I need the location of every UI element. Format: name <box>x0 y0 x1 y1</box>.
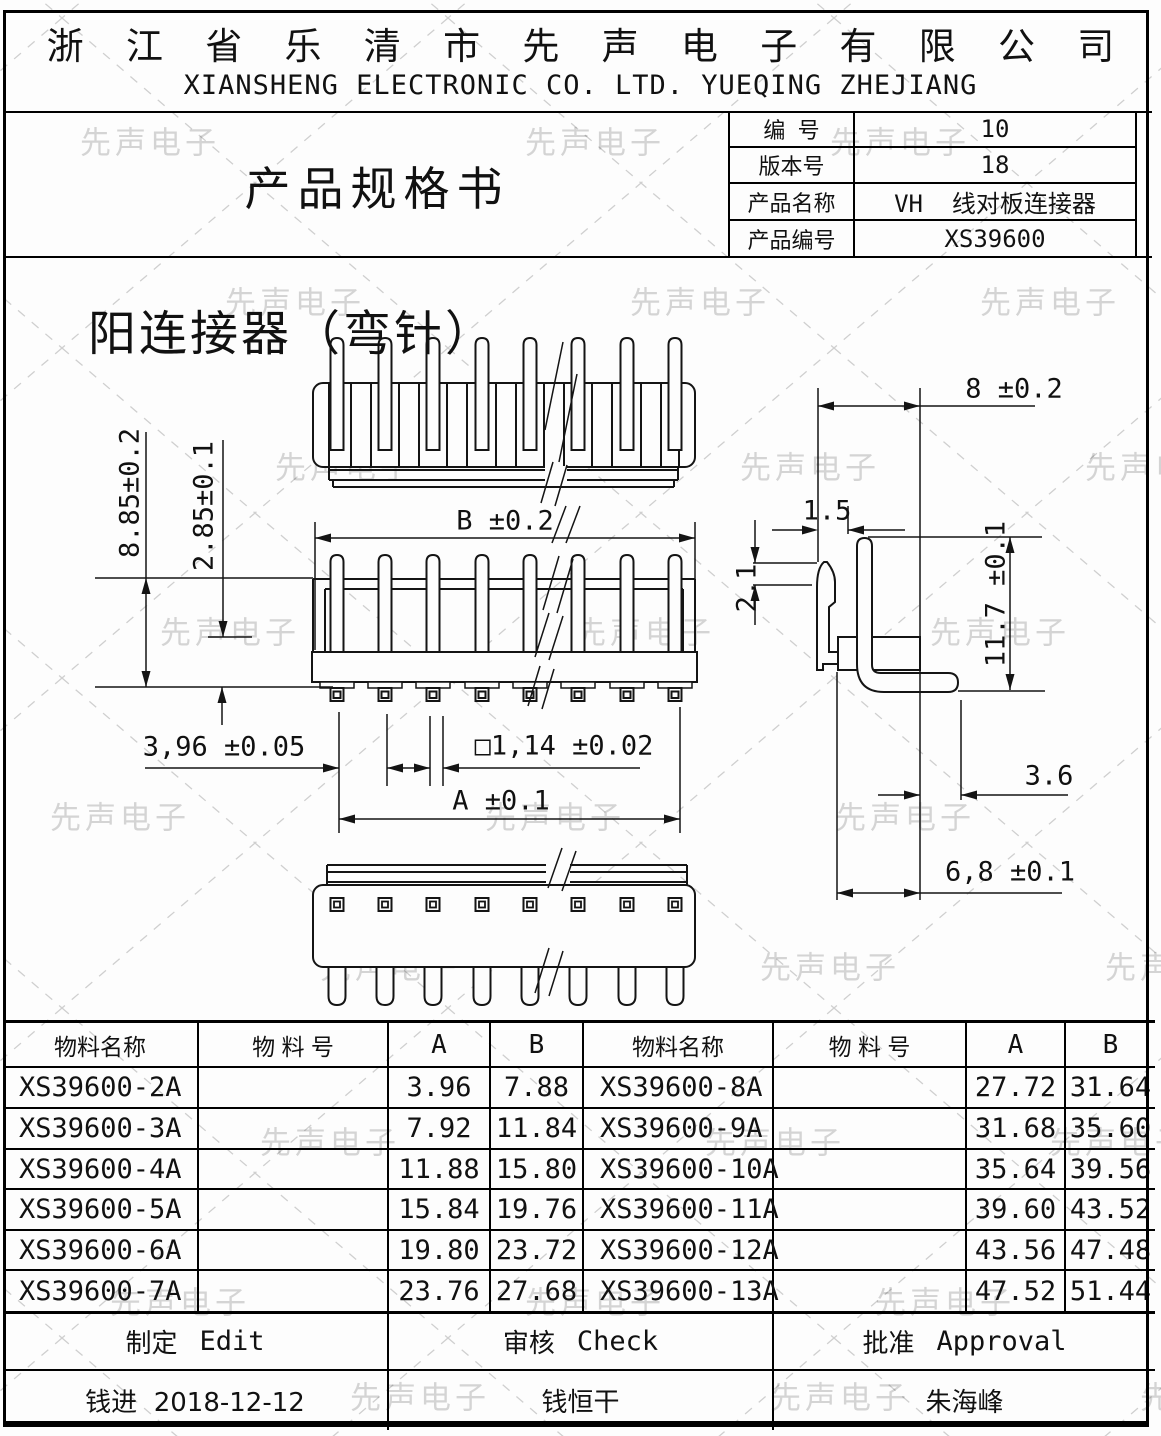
company-name-en: XIANSHENG ELECTRONIC CO. LTD. YUEQING ZH… <box>0 70 1161 101</box>
view-bottom <box>313 865 695 1005</box>
role-check: 审核 Check <box>389 1314 774 1371</box>
dim-tail-len: 3.6 <box>1025 761 1074 792</box>
dimension-cell: 27.68 <box>491 1271 584 1311</box>
dimension-cell: 39.56 <box>1066 1150 1155 1190</box>
part-number-cell: XS39600-12A <box>584 1231 774 1271</box>
dimension-cell: 51.44 <box>1066 1271 1155 1311</box>
dim-latch-width: 1.5 <box>803 496 852 527</box>
role-edit-cn: 制定 <box>125 1323 177 1360</box>
dimension-cell: 39.60 <box>967 1190 1066 1231</box>
part-number-cell: XS39600-10A <box>584 1150 774 1190</box>
part-number-cell: XS39600-6A <box>3 1231 199 1271</box>
dimension-cell <box>774 1150 967 1190</box>
parts-table-header: 物 料 号 <box>774 1023 967 1068</box>
dimension-cell <box>774 1109 967 1150</box>
field-label-product-code: 产品编号 <box>730 221 855 257</box>
field-value-product-name: VH 线对板连接器 <box>855 184 1135 221</box>
spec-sheet-page: 先声电子先声电子先声电子先声电子先声电子先声电子先声电子先声电子先声电子先声电子… <box>0 0 1161 1436</box>
dim-pin-square: □1,14 ±0.02 <box>475 731 654 762</box>
field-label-product-name: 产品名称 <box>730 184 855 221</box>
part-number-cell: XS39600-2A <box>3 1068 199 1109</box>
dim-latch-offset: 2.1 <box>732 564 763 613</box>
role-check-en: Check <box>577 1326 658 1357</box>
view-side <box>817 538 958 692</box>
dimension-cell <box>774 1271 967 1311</box>
dimension-cell: 31.68 <box>967 1109 1066 1150</box>
part-number-cell: XS39600-4A <box>3 1150 199 1190</box>
dim-height-side: 11.7 ±0.1 <box>981 521 1012 667</box>
watermark-text: 先声电子 <box>80 118 220 163</box>
dim-height-total: 8.85±0.2 <box>115 428 146 558</box>
watermark-text: 先声电子 <box>525 118 665 163</box>
doc-title: 产品规格书 <box>245 153 510 219</box>
role-approval-cn: 批准 <box>862 1323 914 1360</box>
part-number-cell: XS39600-3A <box>3 1109 199 1150</box>
dimension-cell <box>774 1068 967 1109</box>
dimension-cell <box>774 1190 967 1231</box>
dim-pitch: 3,96 ±0.05 <box>143 732 306 763</box>
dimension-cell <box>199 1190 389 1231</box>
signature-check: 钱恒干 <box>389 1371 774 1430</box>
role-check-cn: 审核 <box>503 1323 555 1360</box>
dimension-cell <box>774 1231 967 1271</box>
part-number-cell: XS39600-7A <box>3 1271 199 1311</box>
parts-table-header: A <box>389 1023 491 1068</box>
dimension-cell: 15.80 <box>491 1150 584 1190</box>
dim-span-a: A ±0.1 <box>452 786 550 817</box>
drawing-title: 阳连接器（弯针） <box>88 294 496 364</box>
signature-approval: 朱海峰 <box>774 1371 1155 1430</box>
dimension-cell <box>199 1150 389 1190</box>
dim-depth: 8 ±0.2 <box>965 374 1063 405</box>
dimension-cell: 27.72 <box>967 1068 1066 1109</box>
parts-table-header: B <box>1066 1023 1155 1068</box>
view-front <box>312 555 697 701</box>
dimension-cell <box>199 1231 389 1271</box>
company-name-cn: 浙 江 省 乐 清 市 先 声 电 子 有 限 公 司 <box>0 16 1161 70</box>
dimension-cell: 15.84 <box>389 1190 491 1231</box>
dimension-cell: 19.76 <box>491 1190 584 1231</box>
field-value-product-code: XS39600 <box>855 221 1135 257</box>
dimension-cell: 35.64 <box>967 1150 1066 1190</box>
field-value-version: 18 <box>855 148 1135 184</box>
parts-table: 物料名称物 料 号AB物料名称物 料 号ABXS39600-2A3.967.88… <box>3 1020 1155 1311</box>
dimension-cell: 47.48 <box>1066 1231 1155 1271</box>
dimension-cell: 23.72 <box>491 1231 584 1271</box>
parts-table-header: A <box>967 1023 1066 1068</box>
dimension-cell <box>199 1271 389 1311</box>
dimension-cell: 35.60 <box>1066 1109 1155 1150</box>
parts-table-header: 物料名称 <box>584 1023 774 1068</box>
title-block-table: 编 号 10 版本号 18 产品名称 VH 线对板连接器 产品编号 XS3960… <box>728 112 1137 257</box>
dimension-cell: 43.56 <box>967 1231 1066 1271</box>
dim-tail-offset: 6,8 ±0.1 <box>945 857 1075 888</box>
part-number-cell: XS39600-11A <box>584 1190 774 1231</box>
dimension-cell: 3.96 <box>389 1068 491 1109</box>
dim-body-width-b: B ±0.2 <box>456 506 554 537</box>
parts-table-header: B <box>491 1023 584 1068</box>
parts-table-header: 物料名称 <box>3 1023 199 1068</box>
dimension-cell <box>199 1068 389 1109</box>
dimension-cell: 11.84 <box>491 1109 584 1150</box>
dimension-cell: 47.52 <box>967 1271 1066 1311</box>
dimension-cell: 11.88 <box>389 1150 491 1190</box>
part-number-cell: XS39600-13A <box>584 1271 774 1311</box>
field-label-number: 编 号 <box>730 112 855 148</box>
dimension-cell <box>199 1109 389 1150</box>
part-number-cell: XS39600-8A <box>584 1068 774 1109</box>
dimension-cell: 7.92 <box>389 1109 491 1150</box>
dimension-cell: 31.64 <box>1066 1068 1155 1109</box>
part-number-cell: XS39600-5A <box>3 1190 199 1231</box>
role-edit: 制定 Edit <box>3 1314 389 1371</box>
parts-table-header: 物 料 号 <box>199 1023 389 1068</box>
dimension-cell: 43.52 <box>1066 1190 1155 1231</box>
role-edit-en: Edit <box>199 1326 264 1357</box>
dimension-cell: 7.88 <box>491 1068 584 1109</box>
role-approval: 批准 Approval <box>774 1314 1155 1371</box>
signoff-table: 制定 Edit 审核 Check 批准 Approval 钱进 2018-12-… <box>3 1311 1155 1430</box>
field-value-number: 10 <box>855 112 1135 148</box>
dim-height-upper: 2.85±0.1 <box>189 441 220 571</box>
dimension-cell: 19.80 <box>389 1231 491 1271</box>
signature-edit: 钱进 2018-12-12 <box>3 1371 389 1430</box>
role-approval-en: Approval <box>936 1326 1066 1357</box>
part-number-cell: XS39600-9A <box>584 1109 774 1150</box>
field-label-version: 版本号 <box>730 148 855 184</box>
dimension-cell: 23.76 <box>389 1271 491 1311</box>
